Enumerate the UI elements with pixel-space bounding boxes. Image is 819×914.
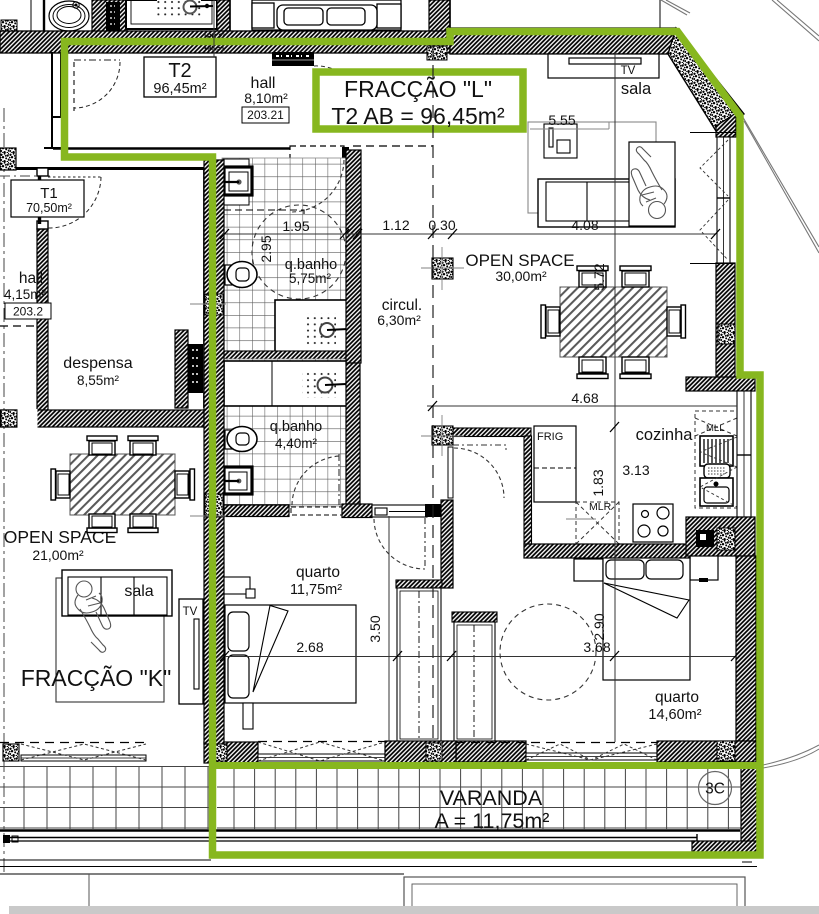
svg-text:VARANDA: VARANDA <box>440 786 543 810</box>
svg-text:4.68: 4.68 <box>571 390 598 406</box>
svg-text:1.83: 1.83 <box>590 469 606 496</box>
svg-text:1.95: 1.95 <box>282 218 309 234</box>
svg-text:11,75m²: 11,75m² <box>290 582 342 598</box>
svg-text:quarto: quarto <box>296 564 340 581</box>
svg-text:FRIG: FRIG <box>537 431 563 443</box>
svg-text:sala: sala <box>621 80 652 98</box>
svg-text:2.68: 2.68 <box>296 639 323 655</box>
svg-text:203.2: 203.2 <box>13 305 43 319</box>
svg-text:T2 AB = 96,45m²: T2 AB = 96,45m² <box>331 103 505 129</box>
svg-text:hall: hall <box>19 270 43 287</box>
svg-text:70,50m²: 70,50m² <box>26 201 72 215</box>
svg-text:4,15m²: 4,15m² <box>4 287 47 302</box>
svg-text:2.90: 2.90 <box>591 613 607 640</box>
svg-text:6,30m²: 6,30m² <box>377 312 421 328</box>
svg-text:14,60m²: 14,60m² <box>648 707 701 723</box>
svg-text:5.72: 5.72 <box>591 263 607 290</box>
svg-text:8,10m²: 8,10m² <box>244 90 288 106</box>
svg-text:TV: TV <box>621 65 636 77</box>
svg-text:4,40m²: 4,40m² <box>275 436 318 451</box>
svg-text:30,00m²: 30,00m² <box>495 268 547 284</box>
svg-text:q.banho: q.banho <box>270 419 322 435</box>
svg-text:MLL: MLL <box>706 423 724 434</box>
svg-text:3.13: 3.13 <box>622 462 649 478</box>
svg-text:3C: 3C <box>705 781 725 798</box>
svg-text:1.12: 1.12 <box>382 217 409 233</box>
svg-text:2.95: 2.95 <box>258 235 274 262</box>
svg-text:FRACÇÃO "L": FRACÇÃO "L" <box>344 76 492 102</box>
svg-text:quarto: quarto <box>655 689 699 706</box>
svg-text:21,00m²: 21,00m² <box>32 547 84 563</box>
svg-text:8,55m²: 8,55m² <box>77 373 120 388</box>
svg-text:96,45m²: 96,45m² <box>153 81 206 97</box>
svg-text:0.30: 0.30 <box>428 217 455 233</box>
svg-text:despensa: despensa <box>63 355 132 372</box>
svg-text:cozinha: cozinha <box>636 426 694 444</box>
svg-text:T1: T1 <box>40 185 58 202</box>
svg-text:FRACÇÃO "K": FRACÇÃO "K" <box>21 665 172 691</box>
svg-text:5,75m²: 5,75m² <box>289 271 332 286</box>
svg-text:4.08: 4.08 <box>571 217 598 233</box>
svg-text:MLR: MLR <box>589 501 612 513</box>
svg-text:sala: sala <box>124 583 153 600</box>
svg-text:T2: T2 <box>168 60 191 82</box>
svg-text:5.55: 5.55 <box>548 112 575 128</box>
svg-text:3.50: 3.50 <box>367 615 383 642</box>
svg-text:TV: TV <box>183 606 198 618</box>
svg-text:203.21: 203.21 <box>247 108 284 122</box>
